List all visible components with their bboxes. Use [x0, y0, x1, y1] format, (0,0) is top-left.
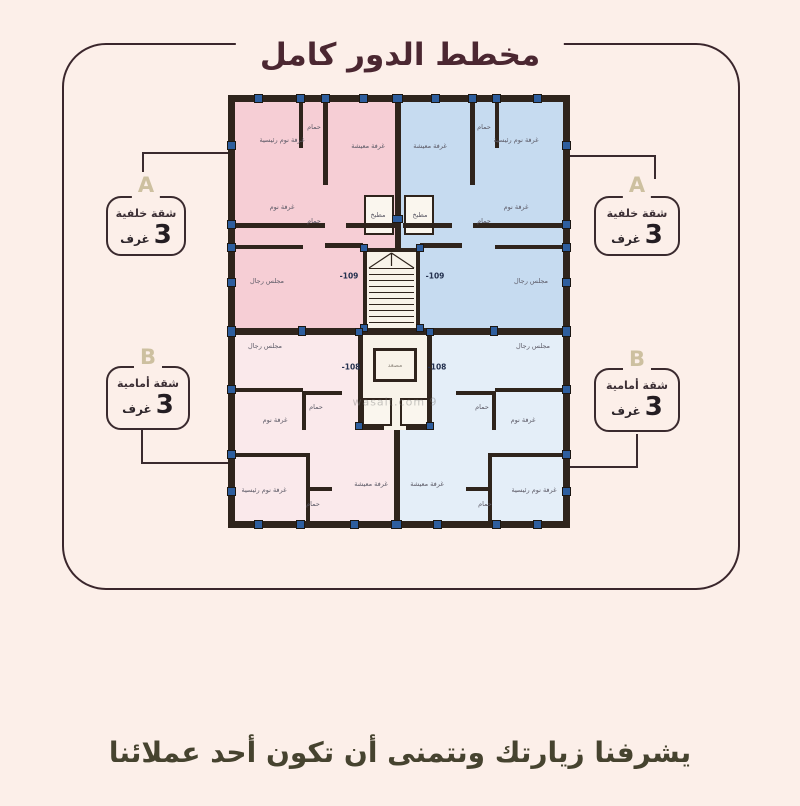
rooms-unit: غرف: [611, 404, 641, 420]
column-marker: [562, 326, 571, 337]
room-label: مطبخ: [413, 211, 428, 219]
column-marker: [298, 326, 306, 336]
room-label: مجلس رجال: [514, 277, 548, 285]
column-marker: [296, 94, 305, 103]
wall: [323, 102, 328, 185]
room-label: غرفة نوم: [504, 203, 529, 211]
rooms-count: 3: [154, 222, 172, 248]
column-marker: [490, 326, 498, 336]
rooms-count: 3: [645, 222, 663, 248]
room-label: مجلس رجال: [248, 342, 282, 350]
wall: [466, 487, 492, 491]
rooms-unit: غرف: [611, 232, 641, 248]
apartment-type: شقة خلفية: [108, 207, 184, 220]
room-label: غرفة نوم: [511, 416, 536, 424]
room-label: غرفة معيشة: [410, 480, 444, 488]
column-marker: [433, 520, 442, 529]
elevator-label: مصعد: [388, 362, 402, 369]
connector-line: [570, 466, 638, 468]
connector-line: [142, 152, 230, 154]
room-label: غرفة معيشة: [413, 142, 447, 150]
column-marker: [416, 244, 424, 252]
column-marker: [533, 520, 542, 529]
column-marker: [254, 94, 263, 103]
wall: [306, 487, 332, 491]
apartment-type: شقة خلفية: [596, 207, 678, 220]
column-marker: [227, 220, 236, 229]
column-marker: [227, 141, 236, 150]
column-marker: [355, 422, 363, 430]
stair-direction-lines: [367, 252, 416, 270]
apartment-letter: A: [623, 172, 651, 198]
room-label: غرفة نوم رئيسية: [493, 136, 538, 144]
room-label: غرفة نوم رئيسية: [259, 136, 304, 144]
column-marker: [468, 94, 477, 103]
room-label: مجلس رجال: [250, 277, 284, 285]
wall: [403, 223, 452, 228]
apartment-label-box: شقة خلفية 3 غرف: [594, 196, 680, 256]
room-label: حمام: [307, 123, 321, 131]
elevator: مصعد: [373, 348, 417, 382]
column-marker: [562, 487, 571, 496]
door-number: -109: [340, 272, 359, 281]
column-marker: [562, 278, 571, 287]
column-marker: [227, 385, 236, 394]
apartment-letter: B: [623, 346, 651, 372]
wall: [394, 430, 400, 521]
connector-line: [654, 155, 656, 179]
wall: [420, 243, 462, 248]
room-label: مجلس رجال: [516, 342, 550, 350]
column-marker: [227, 278, 236, 287]
footer-slogan: يشرفنا زيارتك ونتمنى أن تكون أحد عملائنا: [0, 736, 800, 769]
wall: [228, 95, 235, 528]
column-marker: [392, 94, 403, 103]
connector-line: [141, 462, 230, 464]
wall: [302, 391, 306, 430]
wall: [395, 102, 401, 248]
wall: [228, 328, 570, 335]
wall: [235, 245, 303, 249]
apartment-letter: B: [134, 344, 162, 370]
room-label: مطبخ: [371, 211, 386, 219]
door-number: -108: [342, 363, 361, 372]
connector-line: [636, 434, 638, 468]
column-marker: [227, 326, 236, 337]
room-label: غرفة معيشة: [354, 480, 388, 488]
wall: [456, 391, 496, 395]
connector-line: [141, 430, 143, 464]
room-label: غرفة نوم رئيسية: [241, 486, 286, 494]
poster: مخطط الدور كامل A شقة خلفية 3 غرف A شقة …: [0, 0, 800, 806]
column-marker: [562, 220, 571, 229]
floor-plan: مصعد wasalt.com 9 غرفة نوم رئيسيةحمامغرف…: [228, 95, 570, 528]
column-marker: [431, 94, 440, 103]
column-marker: [359, 94, 368, 103]
room-label: حمام: [477, 123, 491, 131]
column-marker: [562, 450, 571, 459]
column-marker: [492, 94, 501, 103]
room-label: حمام: [477, 217, 491, 225]
column-marker: [426, 328, 434, 336]
staircase: [363, 248, 420, 332]
column-marker: [227, 487, 236, 496]
door-number: -108: [428, 363, 447, 372]
wall: [235, 388, 303, 392]
apartment-type: شقة أمامية: [108, 377, 188, 390]
column-marker: [562, 385, 571, 394]
rooms-unit: غرف: [122, 402, 152, 418]
apartment-label-box: شقة خلفية 3 غرف: [106, 196, 186, 256]
column-marker: [391, 520, 402, 529]
apartment-type: شقة أمامية: [596, 379, 678, 392]
wall: [470, 102, 475, 185]
room-label: حمام: [306, 500, 320, 508]
room-label: غرفة معيشة: [351, 142, 385, 150]
column-marker: [416, 324, 424, 332]
rooms-count: 3: [156, 392, 174, 418]
room-label: غرفة نوم: [270, 203, 295, 211]
wall: [495, 388, 563, 392]
rooms-count: 3: [645, 394, 663, 420]
wall: [302, 391, 342, 395]
column-marker: [227, 450, 236, 459]
wall: [491, 453, 563, 457]
room-label: حمام: [478, 500, 492, 508]
column-marker: [562, 141, 571, 150]
room-label: حمام: [475, 403, 489, 411]
column-marker: [426, 422, 434, 430]
wall: [235, 453, 307, 457]
rooms-unit: غرف: [120, 232, 150, 248]
page-title: مخطط الدور كامل: [236, 37, 564, 73]
column-marker: [562, 243, 571, 252]
stair-steps: [369, 268, 414, 326]
column-marker: [392, 215, 403, 223]
column-marker: [321, 94, 330, 103]
connector-line: [570, 155, 656, 157]
apartment-label-box: شقة أمامية 3 غرف: [594, 368, 680, 432]
room-label: غرفة نوم: [263, 416, 288, 424]
apartment-letter: A: [132, 172, 160, 198]
watermark: wasalt.com 9: [352, 396, 437, 409]
wall: [492, 391, 496, 430]
wall: [358, 335, 363, 427]
room-label: غرفة نوم رئيسية: [511, 486, 556, 494]
column-marker: [227, 243, 236, 252]
column-marker: [492, 520, 501, 529]
wall: [563, 95, 570, 528]
wall: [346, 223, 395, 228]
column-marker: [350, 520, 359, 529]
apartment-label-box: شقة أمامية 3 غرف: [106, 366, 190, 430]
room-label: حمام: [309, 403, 323, 411]
column-marker: [533, 94, 542, 103]
column-marker: [254, 520, 263, 529]
room-label: حمام: [307, 217, 321, 225]
wall: [325, 243, 363, 248]
door-number: -109: [426, 272, 445, 281]
column-marker: [296, 520, 305, 529]
wall: [427, 335, 432, 427]
wall: [495, 245, 563, 249]
column-marker: [360, 244, 368, 252]
column-marker: [355, 328, 363, 336]
